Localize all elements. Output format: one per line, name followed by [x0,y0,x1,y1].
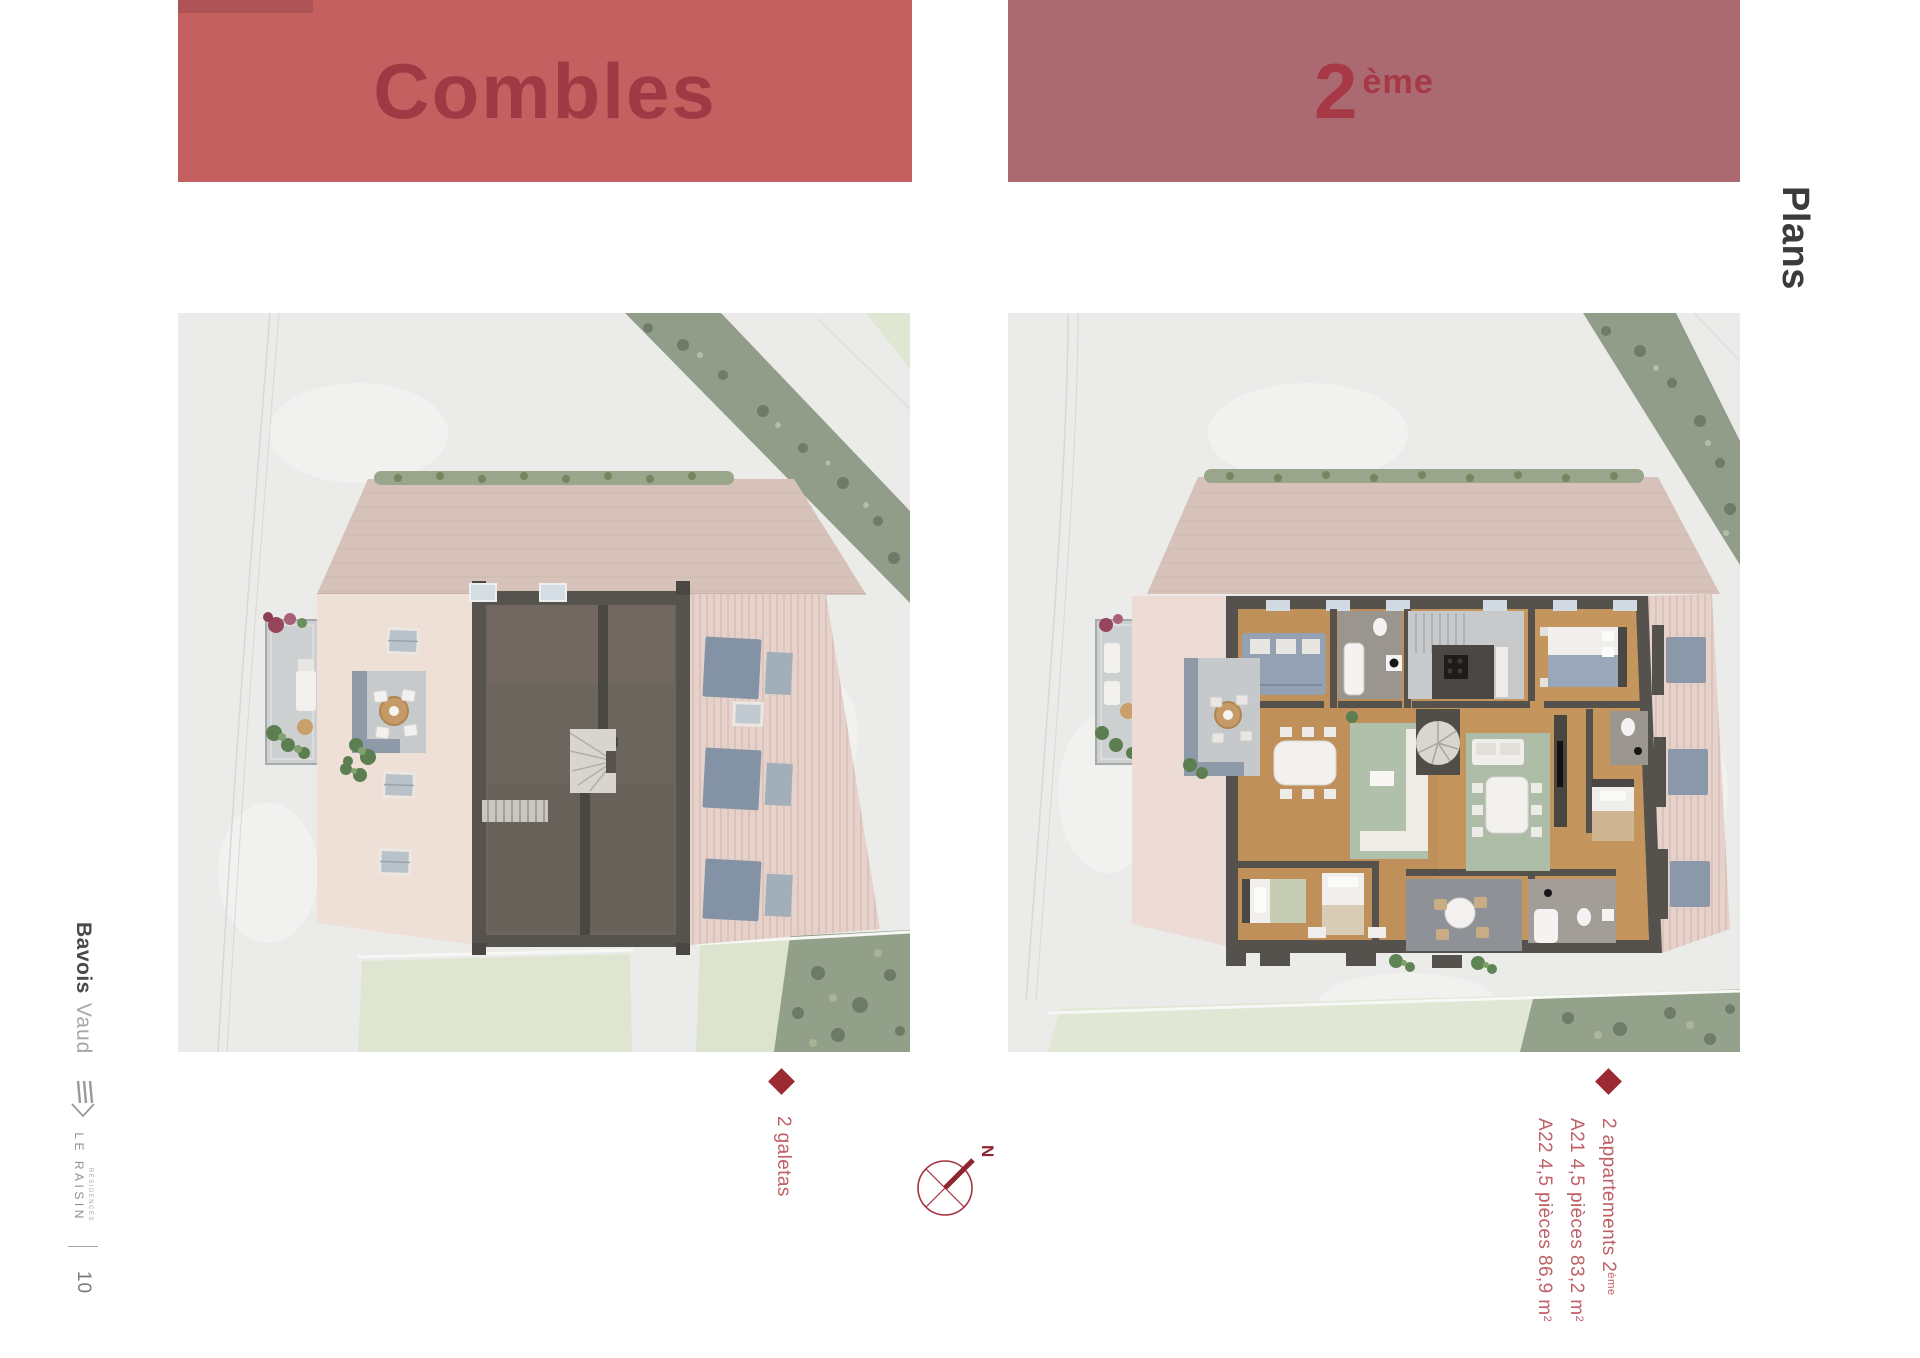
banner-2eme: 2ème [1008,0,1740,182]
roof [1147,469,1720,594]
floor-title-2eme-number: 2 [1314,47,1359,135]
project-region: Vaud [71,1003,95,1055]
floor-plan-combles-image [178,313,910,1052]
floor-title-2eme: 2ème [1314,46,1434,137]
coffee-table [1370,771,1394,786]
floor-plan-2eme-svg [1008,313,1740,1052]
caption-2eme-line2: A21 4,5 pièces 83,2 m2 [1559,1118,1591,1322]
roof-window [470,584,496,601]
banner-top-stripe [178,0,313,13]
le-raisin-logo-icon [69,1078,97,1118]
floor-title-2eme-suffix: ème [1362,63,1434,101]
brand-residences-label: RÉSIDENCES [87,1168,93,1222]
tv-wall [1554,715,1567,827]
caption-diamond-combles [768,1068,795,1095]
sidebar: Bavois Vaud RÉSIDENCES LE RAISIN 10 [68,922,98,1294]
brand-block: RÉSIDENCES LE RAISIN [73,1132,93,1222]
caption-2eme-line1: 2 appartements 2ème [1591,1118,1623,1322]
brochure-page: Combles 2ème Plans [0,0,1920,1358]
stairwell [1408,611,1524,699]
loggia-terrace [1406,879,1522,951]
caption-diamond-2eme [1595,1068,1622,1095]
caption-2eme: 2 appartements 2ème A21 4,5 pièces 83,2 … [1527,1118,1623,1322]
skylight [734,703,763,726]
roof-window [540,584,566,601]
dining-a22 [1472,777,1542,837]
attic-core [470,581,690,955]
sofa-a22 [1472,739,1524,765]
caption-combles: 2 galetas [772,1116,794,1197]
side-table [297,719,313,735]
project-location: Bavois [71,922,95,994]
banner-combles: Combles [178,0,912,182]
sink [1390,659,1399,668]
terrace-a21 [1183,658,1260,779]
bedroom-bottom-2 [1322,873,1364,935]
bathtub [1344,643,1364,695]
bedroom-mid-right [1592,779,1634,841]
right-balconies [1652,625,1710,919]
roof [317,471,866,594]
bathroom-bottom-right [1528,879,1616,943]
bathroom-a22-small [1610,711,1648,765]
bedroom-bottom-1 [1242,879,1306,923]
bedroom-top-right [1540,627,1627,687]
floor-plan-2eme-image [1008,313,1740,1052]
left-balcony [263,612,318,764]
plant [1346,711,1358,723]
caption-2eme-line3: A22 4,5 pièces 86,9 m2 [1527,1118,1559,1322]
page-number: 10 [72,1271,94,1294]
spiral-staircase [570,729,616,793]
sidebar-divider [68,1246,98,1247]
floor-plan-combles-svg [178,313,910,1052]
partition-wall [598,605,608,745]
toilet [1373,618,1387,636]
bathroom-a21 [1338,611,1402,699]
round-table [1445,898,1475,928]
roof-ridge-greenery [374,471,734,485]
straight-staircase [482,800,548,822]
compass-rose: N [890,1130,1010,1240]
floor-title-combles: Combles [373,46,716,137]
lounge-chair [296,671,316,711]
section-label-plans: Plans [1773,186,1816,290]
brand-name-label: LE RAISIN [73,1132,85,1222]
compass-north-label: N [978,1145,997,1157]
apartment-interior [1226,596,1662,953]
spiral-staircase [1416,709,1460,775]
